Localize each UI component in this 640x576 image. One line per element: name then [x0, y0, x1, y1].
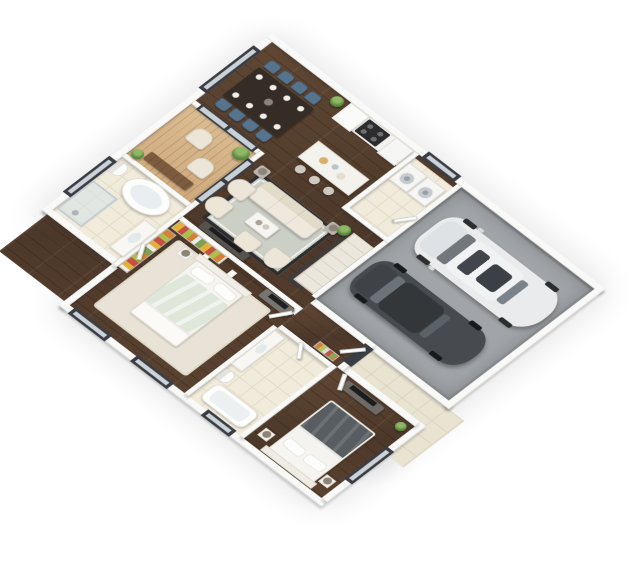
- floor-plan-render: [0, 0, 640, 576]
